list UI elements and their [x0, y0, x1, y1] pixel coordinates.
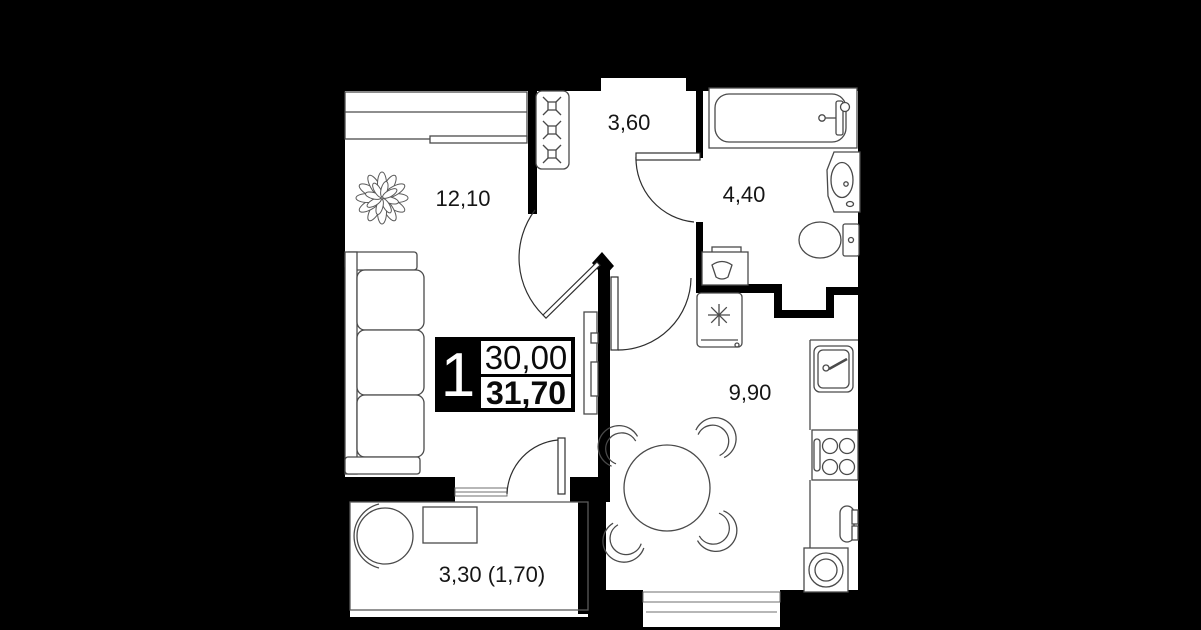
- fridge: [840, 506, 858, 542]
- wall-bath-upper: [696, 88, 703, 158]
- unit-badge: 1 30,00 31,70: [435, 337, 575, 412]
- washing-machine: [702, 247, 748, 285]
- toilet: [799, 222, 859, 258]
- fan-icon: [708, 304, 730, 326]
- wall-left: [331, 83, 345, 502]
- bathroom-door-leaf: [636, 153, 700, 160]
- floor-plan-canvas: 12,10 3,60 4,40 9,90 3,30 (1,70) 1 30,00…: [0, 0, 1201, 630]
- badge-rooms-count: 1: [441, 341, 475, 410]
- badge-area-total: 31,70: [486, 375, 566, 411]
- balcony-table-round: [357, 508, 413, 564]
- kitchen-window: [643, 592, 780, 602]
- kitchen-door-leaf: [611, 277, 618, 350]
- utility-panel: [584, 312, 598, 414]
- balcony-door-leaf: [558, 438, 565, 494]
- balcony-area-label: 3,30 (1,70): [439, 562, 545, 587]
- wall-entry: [598, 262, 610, 479]
- water-heater: [697, 293, 742, 347]
- stove: [812, 430, 858, 480]
- badge-area-main: 30,00: [485, 339, 568, 376]
- kitchen-washing-machine: [804, 548, 848, 592]
- wardrobe: [345, 92, 527, 143]
- wall-duct-h2: [826, 287, 858, 295]
- bathroom-sink: [827, 152, 860, 212]
- closet: [536, 91, 569, 169]
- dining-table: [624, 445, 710, 531]
- living-room-area-label: 12,10: [435, 186, 490, 211]
- floor-entry-niche: [601, 78, 686, 91]
- wall-balcony-left: [338, 477, 455, 502]
- kitchen-sink: [814, 346, 853, 392]
- hallway-area-label: 3,60: [608, 110, 651, 135]
- balcony-table-rect: [423, 507, 477, 543]
- sofa: [345, 252, 424, 474]
- floor-plan: 12,10 3,60 4,40 9,90 3,30 (1,70) 1 30,00…: [0, 0, 1201, 630]
- kitchen-area-label: 9,90: [729, 380, 772, 405]
- wall-duct-h1: [774, 310, 834, 318]
- bathtub: [709, 88, 857, 148]
- bathroom-area-label: 4,40: [723, 182, 766, 207]
- wall-top-left: [331, 83, 601, 91]
